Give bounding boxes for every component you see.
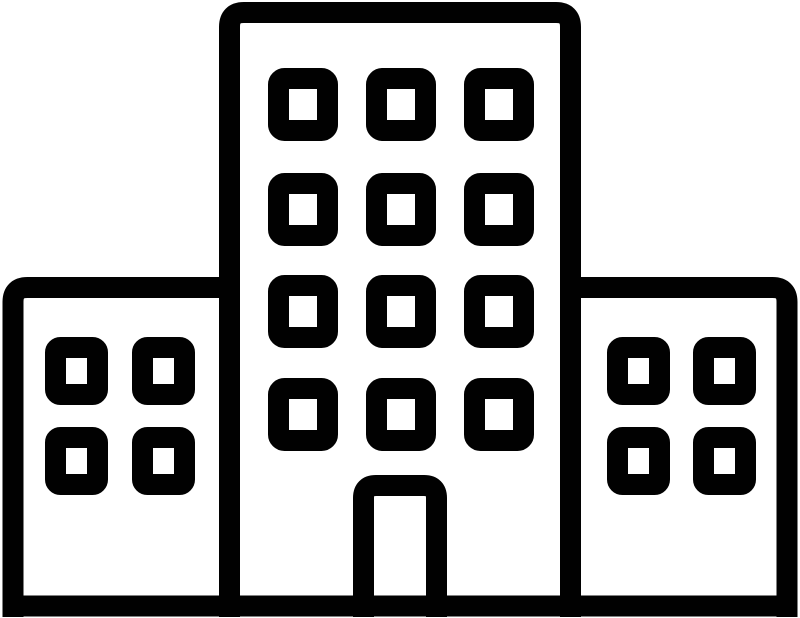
window-icon bbox=[377, 389, 426, 441]
window-icon bbox=[279, 389, 328, 441]
window-icon bbox=[704, 348, 746, 395]
window-icon bbox=[475, 286, 524, 338]
window-icon bbox=[279, 79, 328, 131]
central-building-windows bbox=[279, 79, 524, 441]
window-icon bbox=[377, 286, 426, 338]
left-building-windows bbox=[56, 348, 185, 485]
icon-canvas bbox=[0, 0, 800, 618]
window-icon bbox=[377, 184, 426, 236]
window-icon bbox=[618, 438, 660, 485]
window-icon bbox=[143, 438, 185, 485]
window-icon bbox=[704, 438, 746, 485]
window-icon bbox=[377, 79, 426, 131]
right-building-windows bbox=[618, 348, 746, 485]
window-icon bbox=[56, 438, 98, 485]
window-icon bbox=[618, 348, 660, 395]
window-icon bbox=[143, 348, 185, 395]
window-icon bbox=[279, 184, 328, 236]
window-icon bbox=[475, 79, 524, 131]
window-icon bbox=[475, 389, 524, 441]
window-icon bbox=[56, 348, 98, 395]
office-building-icon bbox=[0, 0, 800, 618]
window-icon bbox=[279, 286, 328, 338]
window-icon bbox=[475, 184, 524, 236]
